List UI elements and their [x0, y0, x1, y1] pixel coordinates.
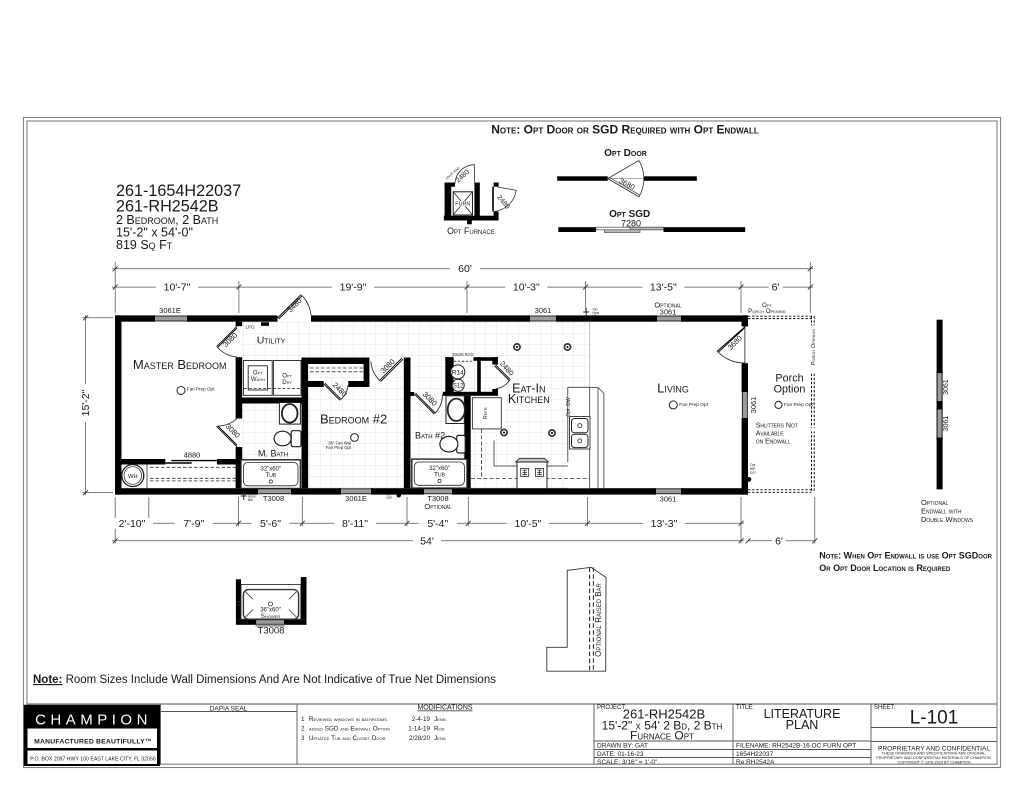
svg-text:TITLE:: TITLE: [736, 705, 754, 711]
svg-text:FURN: FURN [455, 202, 470, 208]
svg-text:L-101: L-101 [910, 708, 959, 729]
svg-text:Opt Door: Opt Door [604, 148, 647, 159]
svg-text:WH: WH [128, 474, 138, 480]
svg-text:Opt. DW: Opt. DW [566, 397, 572, 416]
svg-text:LPG: LPG [245, 325, 255, 330]
svg-text:PLAN: PLAN [786, 718, 819, 732]
svg-text:Re:RH2542A: Re:RH2542A [736, 759, 775, 766]
svg-text:GFI: GFI [387, 496, 393, 500]
svg-text:added SGD and Endwall Option: added SGD and Endwall Option [309, 726, 390, 733]
svg-text:MANUFACTURED BEAUTIFULLY™: MANUFACTURED BEAUTIFULLY™ [34, 739, 152, 746]
svg-text:54': 54' [420, 536, 434, 548]
svg-text:15'-2": 15'-2" [80, 389, 92, 416]
svg-text:Fan Prep Opt: Fan Prep Opt [187, 387, 215, 392]
svg-text:R14: R14 [452, 369, 464, 376]
svg-text:10'-5": 10'-5" [515, 518, 542, 530]
svg-text:19'-9": 19'-9" [340, 281, 367, 293]
svg-text:3061: 3061 [660, 308, 677, 317]
svg-text:Fan Prep Opt: Fan Prep Opt [326, 445, 352, 450]
svg-text:Utility: Utility [257, 335, 286, 347]
svg-text:1: 1 [301, 716, 305, 723]
svg-text:7'-9": 7'-9" [183, 518, 204, 530]
svg-text:GFI: GFI [750, 471, 756, 475]
svg-text:6': 6' [775, 536, 783, 548]
svg-text:5'-6": 5'-6" [260, 518, 281, 530]
svg-text:10'-7": 10'-7" [164, 281, 191, 293]
svg-text:Tub: Tub [265, 472, 277, 479]
svg-text:Jenn: Jenn [434, 716, 446, 723]
svg-text:Jenn: Jenn [434, 735, 446, 742]
svg-text:FILENAME: RH2542B-16 OC FURN O: FILENAME: RH2542B-16 OC FURN OPT [736, 743, 856, 750]
svg-text:P.O. BOX 2097 HWY 100 EAST LAK: P.O. BOX 2097 HWY 100 EAST LAKE CITY, FL… [30, 757, 156, 763]
svg-text:Note: Opt Door or SGD Required: Note: Opt Door or SGD Required with Opt … [491, 123, 759, 137]
svg-text:PROPRIETARY AND CONFIDENTIAL M: PROPRIETARY AND CONFIDENTIAL MATERIALS O… [876, 756, 992, 760]
svg-text:Bedroom #2: Bedroom #2 [320, 412, 387, 427]
svg-text:Shutters Not: Shutters Not [756, 423, 798, 430]
svg-text:Kitchen: Kitchen [508, 392, 550, 406]
svg-text:DRAWN BY: GAT: DRAWN BY: GAT [597, 743, 648, 750]
svg-text:Available: Available [756, 431, 785, 438]
svg-text:Fan Prep Opt: Fan Prep Opt [679, 402, 708, 408]
svg-text:Living: Living [657, 380, 689, 395]
svg-text:Optional Raised Bar: Optional Raised Bar [594, 582, 603, 656]
svg-text:5'-4": 5'-4" [427, 518, 448, 530]
svg-text:Porch Opening: Porch Opening [811, 329, 817, 366]
svg-text:10'-3": 10'-3" [513, 281, 540, 293]
svg-text:Wash: Wash [251, 377, 265, 383]
svg-text:Reviewed windows in bathrooms: Reviewed windows in bathrooms [309, 716, 387, 723]
svg-text:Tub: Tub [434, 472, 446, 479]
svg-text:819 Sq Ft: 819 Sq Ft [116, 238, 173, 252]
svg-text:3061: 3061 [535, 306, 552, 315]
svg-text:Fan Prep Opt: Fan Prep Opt [784, 402, 813, 408]
svg-text:Optional: Optional [424, 502, 451, 511]
svg-text:THESE DRAWINGS AND SPECIFICATI: THESE DRAWINGS AND SPECIFICATIONS ARE OR… [882, 752, 987, 756]
svg-text:2'-10": 2'-10" [119, 518, 146, 530]
svg-text:13'-5": 13'-5" [650, 281, 677, 293]
svg-text:CHAMPION: CHAMPION [35, 712, 152, 729]
svg-text:3061: 3061 [943, 379, 950, 395]
svg-text:13'-3": 13'-3" [651, 518, 678, 530]
svg-text:SHEET:: SHEET: [874, 705, 895, 711]
svg-text:Updated Tub and Closet Door: Updated Tub and Closet Door [309, 735, 386, 742]
svg-text:DATE: 01-16-23: DATE: 01-16-23 [597, 751, 644, 758]
svg-text:3: 3 [301, 735, 305, 742]
svg-text:Master Bedroom: Master Bedroom [133, 357, 227, 372]
svg-text:Porch Opening: Porch Opening [748, 308, 786, 315]
svg-text:COPYRIGHT © 1976-2024 BY CHAMP: COPYRIGHT © 1976-2024 BY CHAMPION [897, 761, 970, 765]
svg-text:Note: When Opt Endwall is use: Note: When Opt Endwall is use Opt SGDoor [819, 551, 992, 561]
svg-text:Double Windows: Double Windows [921, 515, 974, 524]
svg-text:M. Bath: M. Bath [258, 449, 288, 459]
svg-text:T3008: T3008 [263, 494, 284, 503]
svg-text:Opt: Opt [253, 371, 263, 377]
svg-text:Bib: Bib [593, 314, 598, 318]
svg-text:2: 2 [301, 726, 305, 733]
svg-text:3061E: 3061E [159, 306, 181, 315]
svg-text:20x25 RAG: 20x25 RAG [452, 352, 474, 357]
svg-text:3061E: 3061E [345, 494, 367, 503]
svg-text:Opt Furnace: Opt Furnace [447, 226, 495, 236]
svg-text:Bib: Bib [248, 498, 253, 502]
svg-text:DAPIA SEAL: DAPIA SEAL [210, 706, 248, 713]
svg-text:SCALE: 3/16" = 1'-0": SCALE: 3/16" = 1'-0" [597, 759, 658, 766]
svg-text:3061: 3061 [749, 397, 758, 414]
svg-text:1654H22037: 1654H22037 [736, 751, 774, 758]
svg-text:T3008: T3008 [258, 625, 285, 636]
svg-text:4880: 4880 [184, 451, 201, 460]
svg-text:6': 6' [772, 281, 780, 293]
svg-text:MODIFICATIONS: MODIFICATIONS [417, 705, 472, 712]
svg-text:S12: S12 [453, 384, 464, 390]
svg-text:3061: 3061 [660, 495, 677, 504]
svg-text:Rod: Rod [434, 726, 445, 733]
svg-text:2/28/20: 2/28/20 [409, 735, 431, 742]
svg-text:Bath #2: Bath #2 [415, 431, 445, 441]
svg-text:Or Opt Door Location is Requir: Or Opt Door Location is Required [819, 563, 951, 573]
svg-text:3061: 3061 [943, 416, 950, 432]
svg-text:8'-11": 8'-11" [342, 518, 368, 530]
svg-text:2-4-19: 2-4-19 [412, 716, 431, 723]
svg-text:Note: Room Sizes Include Wall: Note: Room Sizes Include Wall Dimensions… [33, 674, 496, 686]
svg-text:Refr: Refr [483, 407, 489, 419]
svg-text:Shower: Shower [261, 613, 281, 620]
svg-text:1-14-19: 1-14-19 [408, 726, 430, 733]
svg-text:Opt: Opt [282, 374, 292, 380]
svg-text:60': 60' [458, 263, 472, 275]
svg-text:Dry: Dry [282, 380, 292, 386]
svg-text:Furnace Opt: Furnace Opt [630, 728, 694, 742]
svg-text:Option: Option [774, 384, 806, 396]
svg-text:on Endwall: on Endwall [756, 439, 791, 446]
